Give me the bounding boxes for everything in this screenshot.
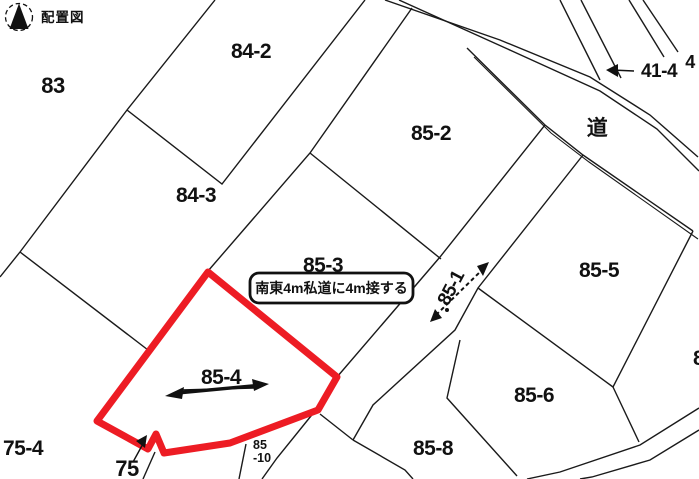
site-plan-page: 配置図	[0, 0, 699, 479]
arrow-dot	[445, 308, 449, 312]
label-85-5: 85-5	[579, 259, 620, 282]
label-85-6: 85-6	[514, 384, 554, 407]
label-85-2: 85-2	[411, 122, 451, 145]
label-85-4: 85-4	[201, 366, 242, 389]
label-84-2: 84-2	[231, 40, 271, 63]
label-75-4: 75-4	[3, 437, 44, 460]
annotation-callout: 南東4m私道に4m接する	[250, 273, 413, 303]
label-85-10-top: 85	[253, 438, 267, 452]
label-road: 道	[587, 116, 608, 140]
label-4: 4	[685, 52, 695, 72]
label-85-10-bottom: -10	[253, 451, 271, 465]
label-85-8: 85-8	[413, 437, 454, 460]
label-75: 75	[115, 456, 139, 479]
label-84-3: 84-3	[176, 184, 216, 207]
label-83: 83	[41, 73, 65, 98]
site-plan-map: 配置図	[0, 0, 699, 479]
page-title: 配置図	[41, 10, 85, 25]
annotation-text: 南東4m私道に4m接する	[255, 280, 407, 296]
label-41-4: 41-4	[641, 61, 678, 82]
label-8-partial: 8	[693, 347, 699, 370]
